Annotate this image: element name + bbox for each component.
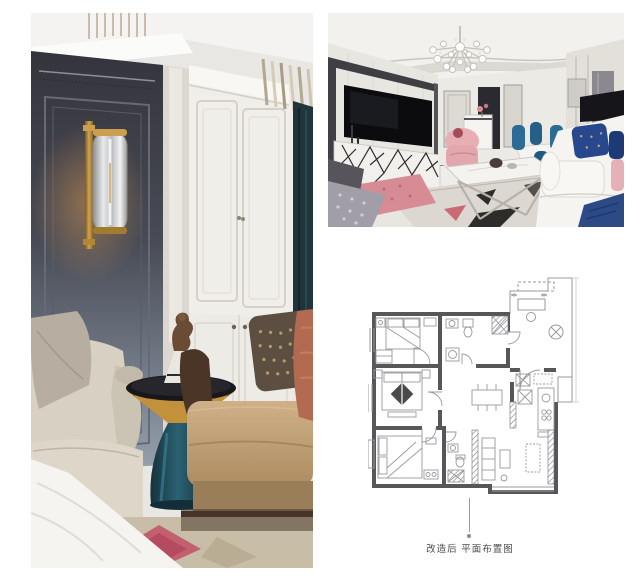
photo-living-room [328,13,624,227]
blue-pillow [571,123,610,160]
pink-armchair [445,128,479,169]
wall-sconce [83,121,127,249]
floor-plan-drawing [368,272,580,494]
photo-interior-detail [31,13,313,568]
wardrobe [189,65,293,318]
floor-plan-caption: 改造后 平面布置图 [400,541,540,555]
bedroom-2 [374,370,430,417]
blue-pillow-2 [609,131,624,159]
collage-canvas: 改造后 平面布置图 [0,0,644,581]
caption-leader-line [469,498,470,532]
caption-leader-dot [467,534,471,538]
pink-pillow [611,159,624,191]
